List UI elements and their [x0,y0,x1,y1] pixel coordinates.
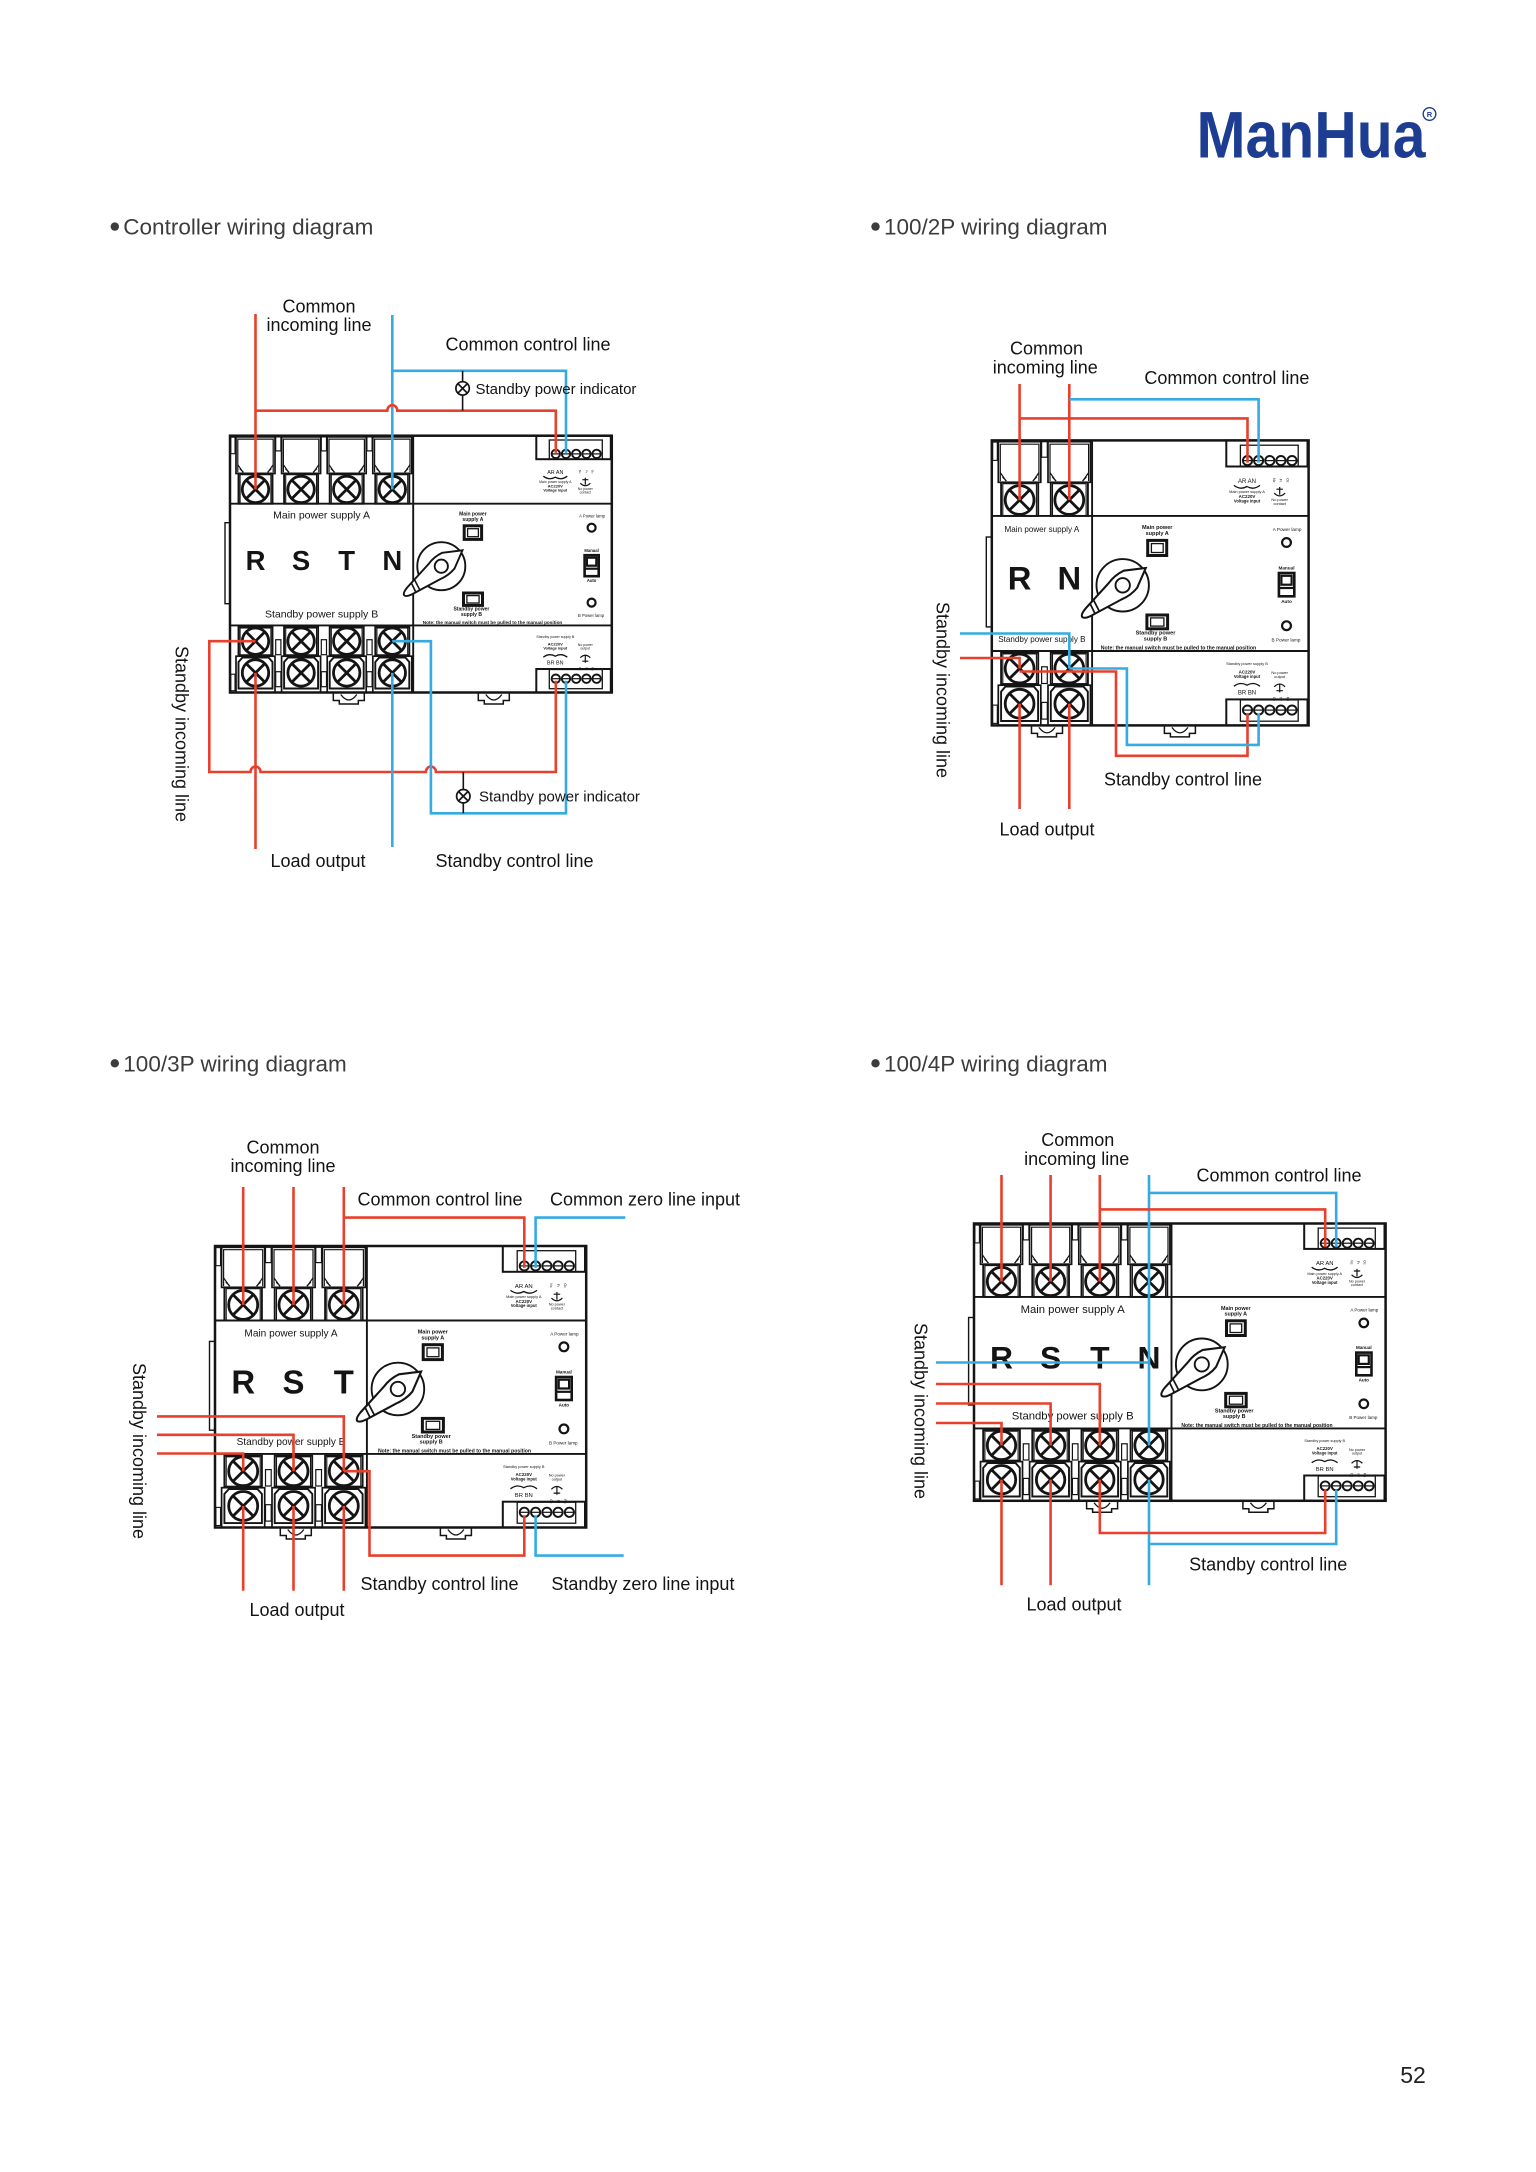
svg-text:Ro: Ro [591,667,595,671]
svg-text:incoming line: incoming line [266,315,371,335]
svg-text:AR AN: AR AN [1316,1261,1334,1267]
svg-text:supply B: supply B [420,1440,443,1446]
svg-text:Note: the manual switch must b: Note: the manual switch must be pulled t… [1181,1423,1332,1429]
svg-text:Cc: Cc [578,667,582,671]
svg-text:Standby power supply B: Standby power supply B [503,1465,545,1469]
svg-text:A Power lamp: A Power lamp [1350,1308,1378,1313]
svg-text:AR AN: AR AN [1238,479,1256,485]
svg-text:Voltage input: Voltage input [511,1477,538,1482]
svg-text:Ro: Ro [563,1499,567,1503]
svg-text:Standby zero line input: Standby zero line input [551,1574,734,1594]
svg-text:BR BN: BR BN [547,661,564,667]
svg-text:A Power lamp: A Power lamp [550,1331,579,1336]
svg-text:Standby power supply B: Standby power supply B [1012,1411,1134,1423]
svg-text:Standby control line: Standby control line [435,851,593,871]
svg-text:incoming line: incoming line [1024,1149,1129,1169]
svg-text:incoming line: incoming line [993,358,1098,378]
svg-text:contact: contact [1273,501,1286,506]
svg-text:Fr: Fr [1279,479,1283,483]
svg-text:Note: the manual switch must b: Note: the manual switch must be pulled t… [378,1448,531,1454]
svg-text:contact: contact [1351,1283,1364,1287]
svg-text:Standby incoming line: Standby incoming line [933,602,953,778]
svg-text:Controller wiring diagram: Controller wiring diagram [123,215,373,240]
svg-text:T: T [338,545,355,576]
svg-text:N: N [382,545,402,576]
svg-text:R: R [1008,560,1032,597]
svg-text:incoming line: incoming line [230,1156,335,1176]
svg-text:S: S [283,1363,305,1400]
svg-text:Nc: Nc [1349,1260,1353,1264]
svg-text:T: T [334,1363,354,1400]
svg-text:Oc: Oc [1363,1260,1367,1265]
svg-text:Standby power supply B: Standby power supply B [1304,1439,1345,1443]
svg-text:Load output: Load output [1026,1595,1121,1615]
svg-text:Voltage input: Voltage input [1312,1280,1338,1285]
svg-text:Load output: Load output [999,820,1094,840]
svg-text:Fr: Fr [584,470,588,473]
svg-text:Auto: Auto [587,578,597,583]
svg-text:Manual: Manual [1278,565,1294,570]
svg-text:Fr: Fr [556,1284,560,1288]
svg-text:100/4P wiring diagram: 100/4P wiring diagram [884,1051,1107,1076]
svg-text:Manual: Manual [584,548,598,553]
svg-text:Standby incoming line: Standby incoming line [911,1323,931,1499]
svg-text:R: R [231,1363,255,1400]
svg-text:Cc: Cc [1349,1473,1353,1477]
svg-text:Standby power supply B: Standby power supply B [536,635,574,639]
svg-text:Standby power supply B: Standby power supply B [1226,661,1268,666]
svg-text:BR BN: BR BN [1316,1467,1334,1473]
svg-text:Nf: Nf [556,1500,560,1503]
svg-text:Ro: Ro [1363,1473,1367,1477]
svg-text:Standby control line: Standby control line [1189,1555,1347,1575]
svg-text:Fr: Fr [1356,1261,1360,1265]
svg-text:B Power lamp: B Power lamp [549,1441,578,1446]
svg-text:Common control line: Common control line [357,1190,522,1210]
svg-text:AR AN: AR AN [515,1284,533,1290]
svg-text:Common control line: Common control line [1144,368,1309,388]
svg-text:Common: Common [1010,339,1083,359]
svg-text:N: N [1057,560,1081,597]
svg-text:Voltage input: Voltage input [1234,498,1261,503]
svg-text:R: R [990,1340,1013,1376]
svg-text:BR BN: BR BN [515,1493,533,1499]
svg-text:output: output [1274,674,1286,679]
svg-text:Voltage input: Voltage input [543,647,567,651]
svg-text:R: R [246,545,266,576]
svg-text:Voltage input: Voltage input [543,489,567,493]
svg-text:Auto: Auto [1281,599,1292,604]
svg-text:B Power lamp: B Power lamp [578,613,605,618]
svg-text:AR AN: AR AN [547,470,563,476]
svg-text:Note: the manual switch must b: Note: the manual switch must be pulled t… [1101,645,1256,651]
svg-text:Standby power supply B: Standby power supply B [998,635,1085,644]
svg-text:Auto: Auto [559,1403,570,1408]
svg-text:output: output [552,1478,564,1482]
svg-text:output: output [580,647,590,651]
svg-text:Voltage input: Voltage input [511,1303,538,1308]
svg-text:52: 52 [1400,2062,1426,2088]
svg-text:output: output [1352,1452,1363,1456]
svg-text:supply B: supply B [1144,636,1167,642]
svg-text:supply B: supply B [1223,1414,1246,1420]
svg-text:Cc: Cc [549,1499,553,1503]
svg-text:Voltage input: Voltage input [1234,674,1261,679]
svg-text:Main power supply A: Main power supply A [273,509,370,521]
svg-text:Manual: Manual [556,1369,572,1374]
svg-text:Ro: Ro [1285,697,1289,701]
svg-text:100/3P wiring diagram: 100/3P wiring diagram [123,1051,346,1076]
svg-text:B Power lamp: B Power lamp [1272,638,1301,643]
svg-text:Standby incoming line: Standby incoming line [172,646,192,822]
svg-text:Oc: Oc [591,470,595,474]
svg-text:Load output: Load output [270,851,365,871]
svg-text:Nf: Nf [1279,697,1283,700]
svg-text:Nc: Nc [549,1283,553,1287]
svg-text:Oc: Oc [563,1283,567,1288]
svg-text:Standby power supply B: Standby power supply B [237,1437,346,1448]
svg-text:supply A: supply A [1146,531,1169,537]
svg-text:supply A: supply A [1225,1312,1248,1318]
svg-text:Oc: Oc [1285,478,1289,483]
svg-text:Load output: Load output [249,1600,344,1620]
svg-text:supply B: supply B [461,612,483,618]
svg-text:Voltage input: Voltage input [1312,1451,1338,1456]
svg-text:supply A: supply A [462,517,483,523]
svg-text:Standby power indicator: Standby power indicator [476,381,637,398]
svg-text:contact: contact [580,491,591,495]
svg-text:Common: Common [282,297,355,317]
svg-text:S: S [292,545,310,576]
svg-text:Standby control line: Standby control line [360,1574,518,1594]
svg-text:Cc: Cc [1272,697,1276,701]
svg-text:B Power lamp: B Power lamp [1349,1415,1378,1420]
svg-text:supply A: supply A [421,1335,444,1341]
svg-text:BR BN: BR BN [1238,691,1256,697]
svg-text:Main power supply A: Main power supply A [244,1329,337,1340]
svg-text:Common: Common [246,1138,319,1158]
svg-text:Auto: Auto [1359,1378,1370,1383]
svg-text:S: S [1040,1340,1061,1376]
svg-text:Common: Common [1041,1130,1114,1150]
svg-text:A Power lamp: A Power lamp [1273,527,1302,532]
svg-text:A Power lamp: A Power lamp [579,513,606,518]
svg-text:Main power supply A: Main power supply A [1021,1304,1126,1316]
svg-text:Standby control line: Standby control line [1104,770,1262,790]
svg-text:Main power supply A: Main power supply A [1005,525,1080,534]
svg-text:Note: the manual switch must b: Note: the manual switch must be pulled t… [423,620,563,625]
svg-text:ManHua: ManHua [1197,98,1427,172]
svg-text:Standby power indicator: Standby power indicator [479,789,640,806]
svg-text:T: T [1090,1340,1110,1376]
svg-text:Standby power supply B: Standby power supply B [265,608,378,620]
svg-text:contact: contact [551,1307,564,1311]
svg-text:Common control line: Common control line [1196,1166,1361,1186]
svg-text:Common control line: Common control line [445,335,610,355]
svg-text:Nf: Nf [1356,1473,1360,1476]
svg-text:Nc: Nc [1272,478,1276,482]
svg-text:100/2P wiring diagram: 100/2P wiring diagram [884,215,1107,240]
svg-text:Nc: Nc [578,470,582,474]
svg-text:Standby incoming line: Standby incoming line [129,1363,149,1539]
svg-text:Nf: Nf [584,667,588,670]
svg-text:Common zero line input: Common zero line input [550,1190,740,1210]
svg-text:R: R [1427,110,1433,119]
svg-text:Manual: Manual [1356,1345,1372,1350]
